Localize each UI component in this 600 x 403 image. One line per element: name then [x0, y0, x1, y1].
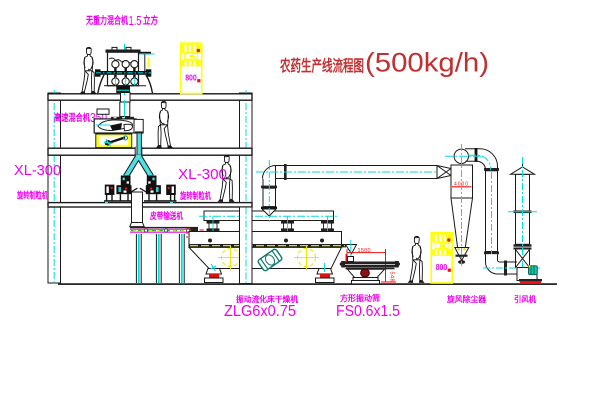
- svg-text:旋转制粒机: 旋转制粒机: [16, 190, 48, 201]
- svg-text:方形振动筛: 方形振动筛: [340, 293, 380, 303]
- svg-text:高速混合机: 高速混合机: [54, 112, 90, 124]
- svg-text:立方: 立方: [143, 14, 158, 27]
- svg-text:农药生产线流程图: 农药生产线流程图: [279, 56, 364, 75]
- svg-text:旋风除尘器: 旋风除尘器: [446, 294, 487, 304]
- svg-text:548: 548: [389, 272, 395, 282]
- svg-text:XL-300: XL-300: [178, 166, 227, 183]
- svg-text:引风机: 引风机: [514, 294, 536, 304]
- svg-text:1.5: 1.5: [129, 13, 142, 28]
- svg-text:无重力混合机: 无重力混合机: [85, 14, 128, 27]
- svg-text:旋转制粒机: 旋转制粒机: [179, 190, 211, 201]
- svg-text:(500kg/h): (500kg/h): [365, 48, 489, 78]
- svg-text:1500: 1500: [358, 248, 371, 254]
- svg-text:FS0.6x1.5: FS0.6x1.5: [336, 303, 400, 320]
- svg-text:ZLG6x0.75: ZLG6x0.75: [224, 303, 296, 320]
- svg-text:皮带输送机: 皮带输送机: [149, 210, 183, 221]
- svg-text:XL-300: XL-300: [14, 162, 61, 179]
